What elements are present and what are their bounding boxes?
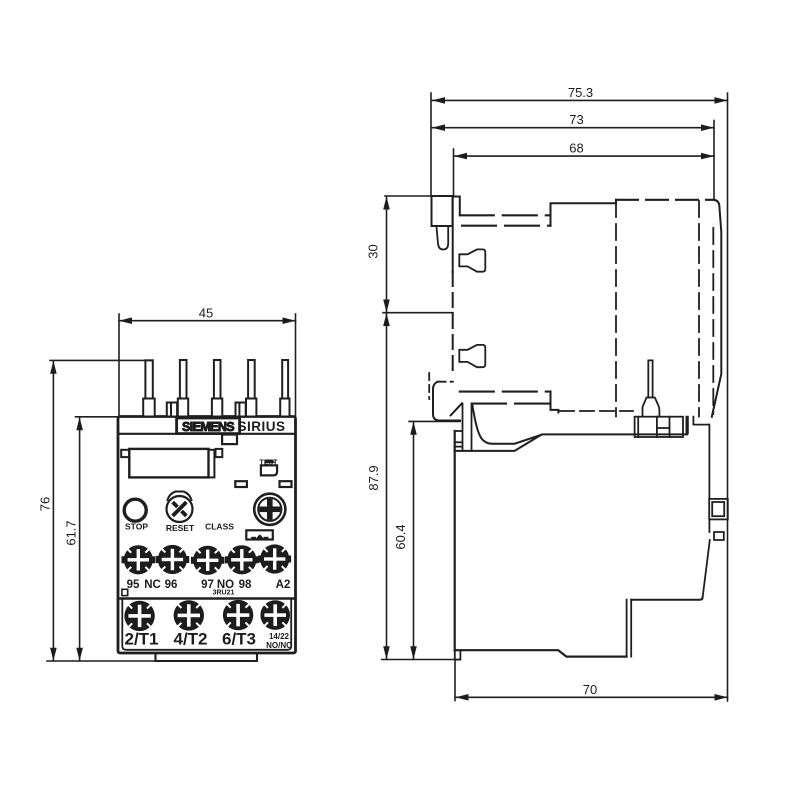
- svg-text:RESET: RESET: [166, 523, 195, 533]
- svg-text:68: 68: [569, 141, 583, 156]
- svg-text:61.7: 61.7: [64, 520, 79, 545]
- svg-text:75.3: 75.3: [568, 85, 593, 100]
- svg-text:SIEMENS: SIEMENS: [182, 420, 234, 434]
- svg-text:3RU21: 3RU21: [213, 590, 235, 597]
- svg-text:14/22: 14/22: [269, 632, 290, 641]
- svg-text:98: 98: [239, 579, 252, 591]
- svg-text:STOP: STOP: [125, 522, 148, 532]
- svg-text:96: 96: [165, 579, 178, 591]
- svg-text:NC: NC: [144, 579, 161, 591]
- svg-text:SIRIUS: SIRIUS: [237, 419, 285, 434]
- svg-text:95: 95: [127, 579, 140, 591]
- svg-text:87.9: 87.9: [366, 465, 381, 490]
- svg-text:73: 73: [569, 112, 583, 127]
- svg-text:A2: A2: [276, 579, 291, 591]
- svg-text:76: 76: [38, 497, 53, 511]
- svg-text:30: 30: [366, 244, 381, 258]
- svg-text:NO/NC: NO/NC: [266, 641, 292, 650]
- svg-text:45: 45: [199, 306, 213, 321]
- svg-text:2/T1: 2/T1: [124, 630, 158, 649]
- svg-text:CLASS: CLASS: [205, 522, 234, 532]
- svg-text:70: 70: [583, 682, 597, 697]
- svg-text:4/T2: 4/T2: [173, 630, 207, 649]
- svg-text:6/T3: 6/T3: [222, 630, 256, 649]
- svg-text:60.4: 60.4: [393, 524, 408, 549]
